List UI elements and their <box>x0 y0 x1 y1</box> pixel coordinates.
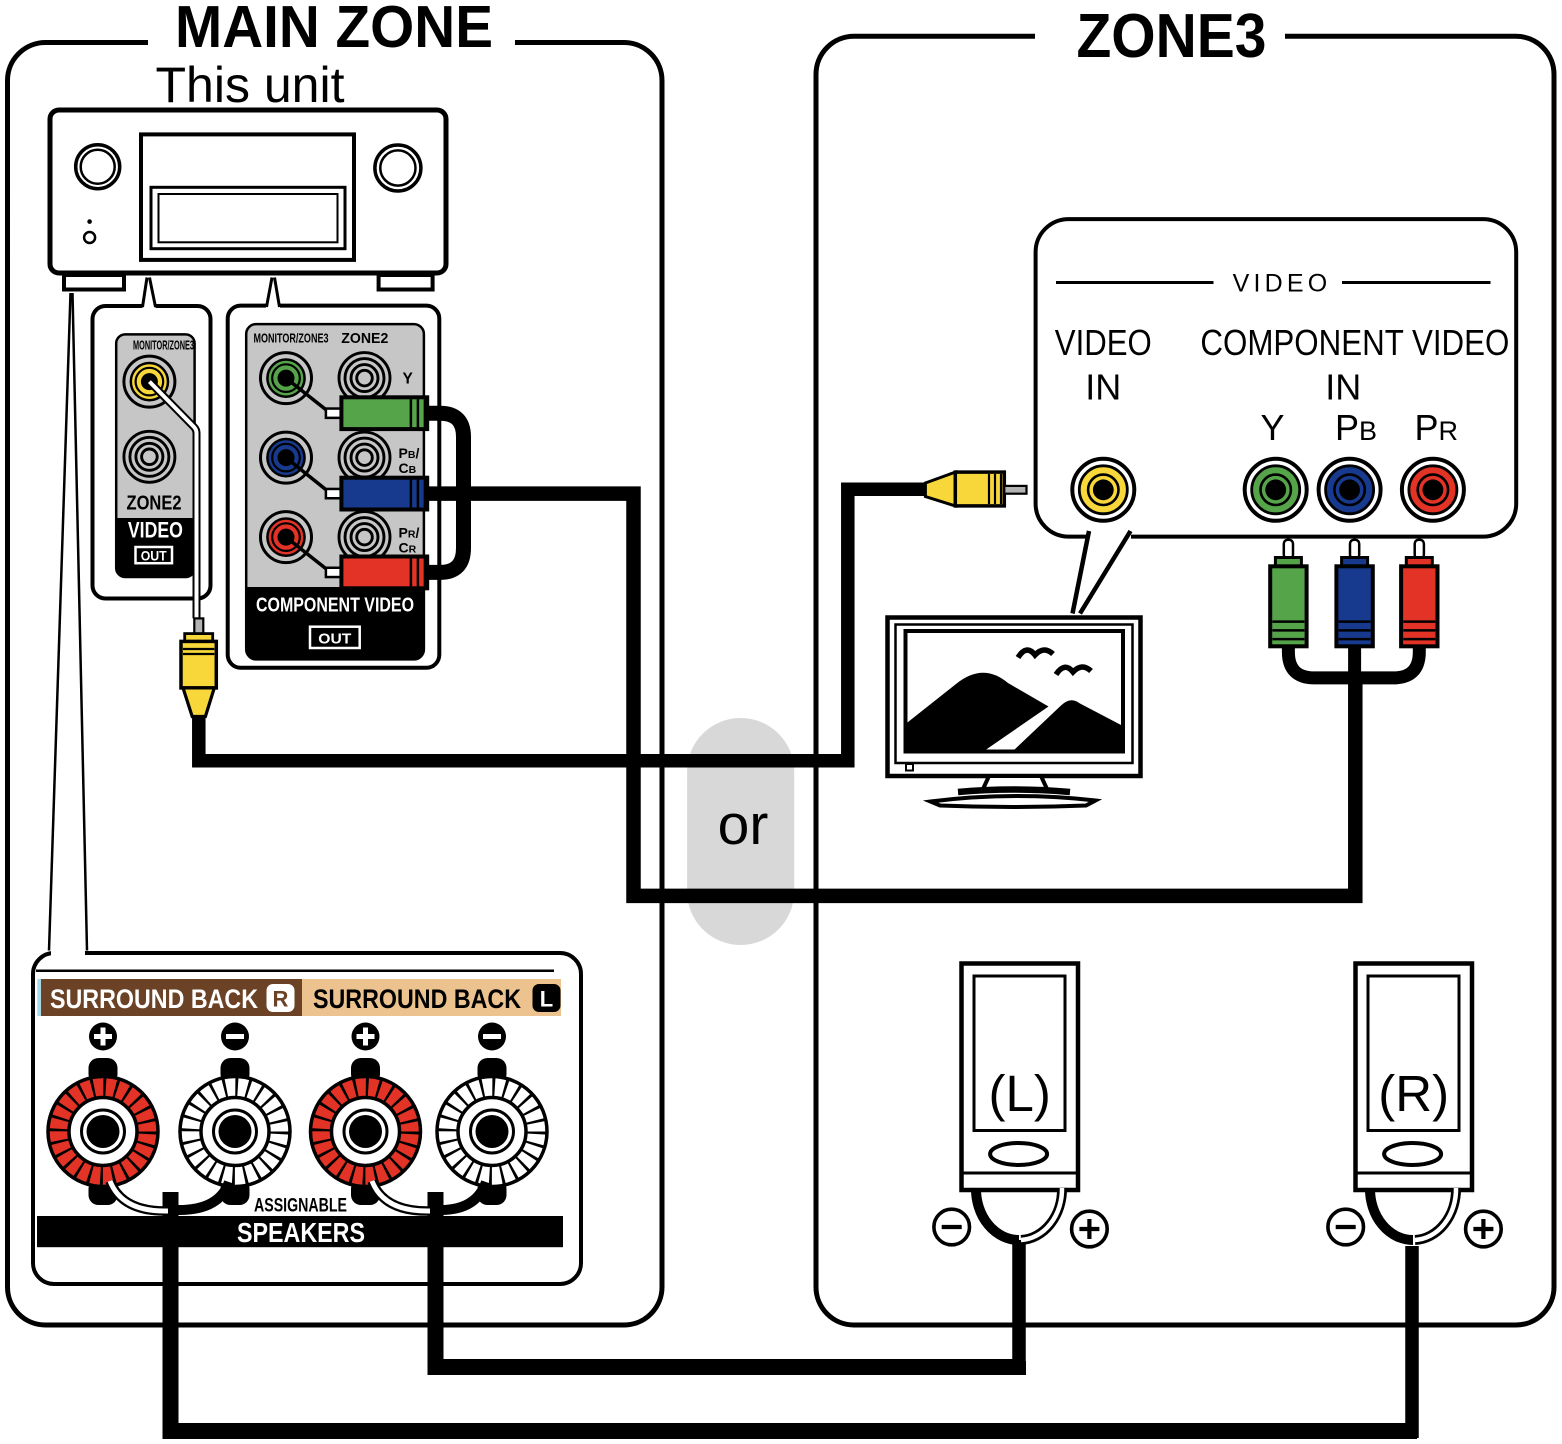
svg-text:IN: IN <box>1325 367 1361 408</box>
svg-text:VIDEO: VIDEO <box>128 517 183 542</box>
svg-text:VIDEO: VIDEO <box>1055 322 1152 363</box>
svg-text:This unit: This unit <box>156 57 345 113</box>
svg-text:OUT: OUT <box>318 631 351 648</box>
svg-text:L: L <box>540 987 553 1012</box>
svg-text:SPEAKERS: SPEAKERS <box>237 1217 365 1248</box>
svg-text:Y: Y <box>1260 407 1284 448</box>
svg-text:VIDEO: VIDEO <box>1233 270 1332 298</box>
svg-text:OUT: OUT <box>141 548 168 563</box>
svg-text:or: or <box>718 793 769 857</box>
svg-text:ASSIGNABLE: ASSIGNABLE <box>254 1196 347 1217</box>
svg-text:COMPONENT VIDEO: COMPONENT VIDEO <box>256 595 414 617</box>
svg-text:SURROUND BACK: SURROUND BACK <box>50 984 258 1014</box>
svg-text:MONITOR/ZONE3: MONITOR/ZONE3 <box>133 338 194 353</box>
svg-text:IN: IN <box>1085 367 1121 408</box>
svg-text:COMPONENT VIDEO: COMPONENT VIDEO <box>1200 322 1509 363</box>
svg-text:Y: Y <box>403 371 414 388</box>
svg-text:ZONE2: ZONE2 <box>127 492 182 514</box>
svg-text:(R): (R) <box>1378 1065 1449 1122</box>
svg-text:MONITOR/ZONE3: MONITOR/ZONE3 <box>254 331 329 346</box>
svg-text:(L): (L) <box>989 1065 1051 1122</box>
svg-text:ZONE3: ZONE3 <box>1077 2 1267 71</box>
svg-text:MAIN ZONE: MAIN ZONE <box>175 0 493 60</box>
svg-text:ZONE2: ZONE2 <box>341 330 388 347</box>
svg-text:R: R <box>273 987 289 1012</box>
svg-text:SURROUND BACK: SURROUND BACK <box>313 984 521 1014</box>
